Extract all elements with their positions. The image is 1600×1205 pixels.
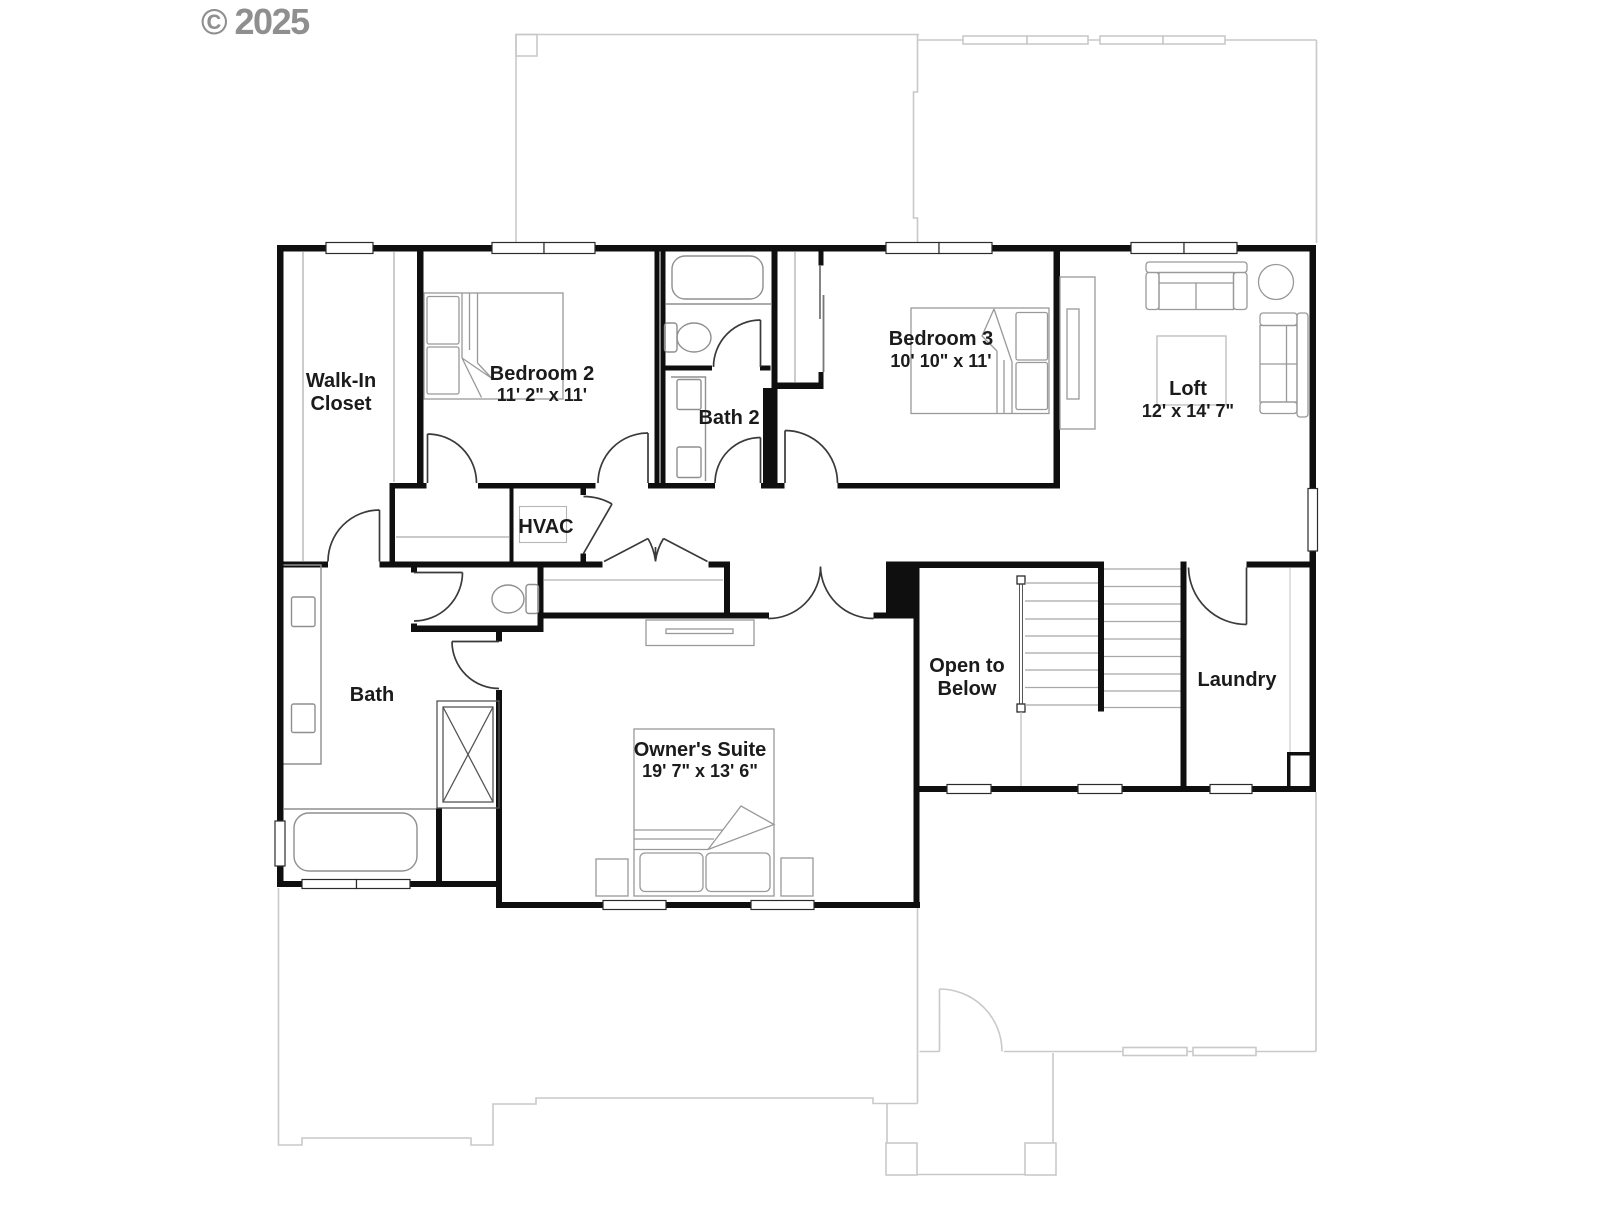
svg-text:19' 7" x 13' 6": 19' 7" x 13' 6": [642, 761, 758, 781]
svg-text:10' 10" x 11': 10' 10" x 11': [890, 351, 991, 371]
svg-text:Walk-In: Walk-In: [306, 370, 376, 392]
svg-text:HVAC: HVAC: [518, 516, 573, 538]
svg-text:Loft: Loft: [1169, 378, 1207, 400]
svg-text:Below: Below: [938, 678, 997, 700]
svg-text:Bedroom 2: Bedroom 2: [490, 363, 594, 385]
svg-text:Bedroom 3: Bedroom 3: [889, 328, 993, 350]
svg-text:Owner's Suite: Owner's Suite: [634, 739, 767, 761]
svg-text:Closet: Closet: [310, 393, 371, 415]
svg-text:12' x 14' 7": 12' x 14' 7": [1142, 401, 1234, 421]
svg-text:© 2025: © 2025: [201, 1, 310, 42]
svg-text:Open to: Open to: [929, 655, 1005, 677]
svg-text:Bath 2: Bath 2: [698, 407, 759, 429]
svg-text:Bath: Bath: [350, 684, 394, 706]
svg-text:Laundry: Laundry: [1198, 669, 1278, 691]
svg-text:11' 2" x 11': 11' 2" x 11': [497, 385, 587, 405]
